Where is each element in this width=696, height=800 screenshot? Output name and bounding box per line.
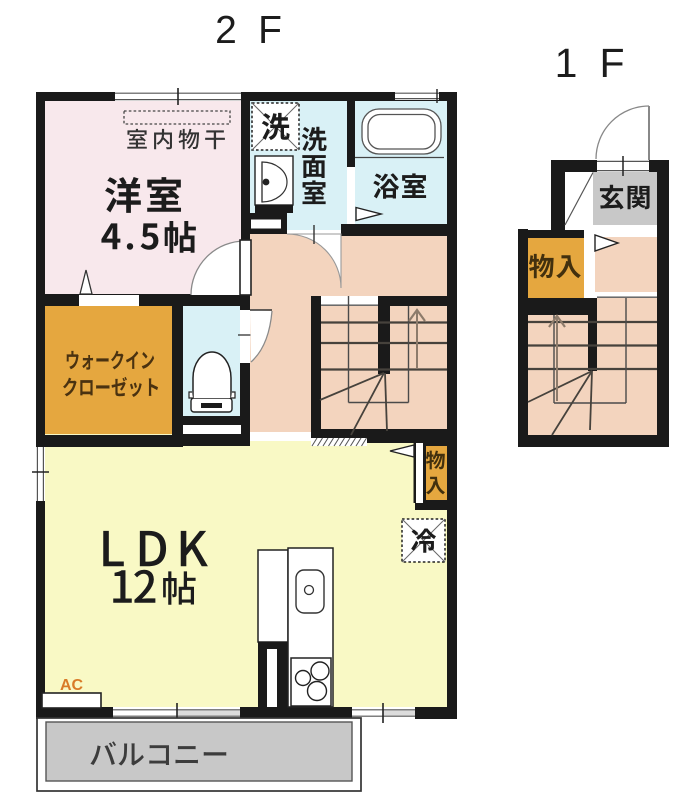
svg-text:1: 1 — [555, 40, 578, 86]
svg-text:AC: AC — [60, 677, 84, 694]
svg-text:F: F — [258, 9, 282, 52]
svg-text:2: 2 — [215, 9, 237, 52]
svg-text:F: F — [599, 40, 624, 86]
